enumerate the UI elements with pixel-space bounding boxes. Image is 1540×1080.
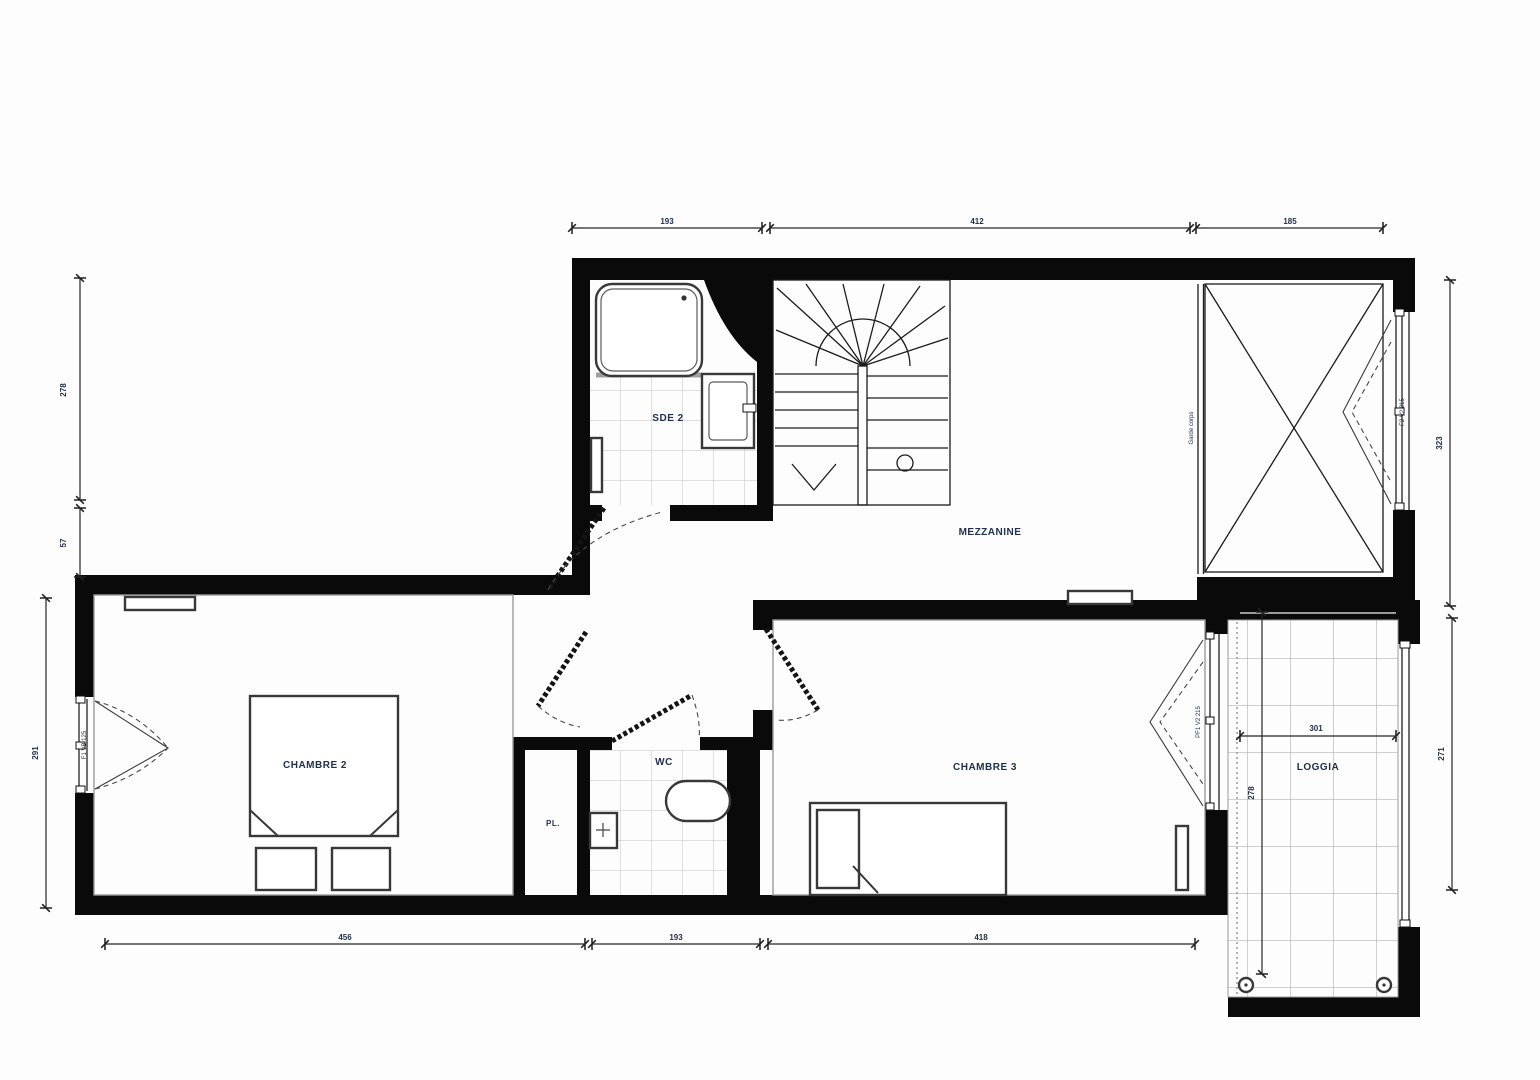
door-swing-chambre2: [538, 706, 580, 727]
room-label-sde2: SDE 2: [652, 413, 683, 424]
dim-loggia-height: 278: [1247, 786, 1256, 800]
guardrail-label: Garde corps: [1189, 411, 1195, 444]
wall-band-below-void: [1197, 577, 1415, 600]
door-ref-loggia: PF1 V2 215: [1196, 705, 1202, 737]
staircase: [773, 280, 950, 505]
chambre2-furniture: [125, 597, 398, 890]
room-label-chambre2: CHAMBRE 2: [283, 760, 347, 771]
wall-sde2-bottom-a: [572, 505, 602, 521]
wall-left-lower-a: [75, 575, 94, 697]
dim-bottom-middle: 193: [669, 933, 683, 942]
door-swing-chambre3: [777, 710, 818, 720]
chambre3-furniture: [810, 591, 1188, 895]
toilet: [666, 781, 730, 821]
window-ref-upper-right: F2 V2 215: [1400, 397, 1406, 425]
dim-left-lower: 291: [31, 746, 40, 760]
nightstand-left: [256, 848, 316, 890]
wall-pl-wc-divider: [577, 750, 590, 895]
room-label-mezzanine: MEZZANINE: [959, 527, 1022, 538]
window-upper-right: F2 V2 215: [1343, 309, 1409, 510]
wall-loggia-left-lower: [1205, 810, 1228, 915]
window-ref-chambre2: F1 VB 125: [82, 730, 88, 759]
bed-pillow: [817, 810, 859, 888]
wall-loggia-bottom: [1228, 997, 1420, 1017]
shower-drain-icon: [681, 295, 686, 300]
doors: [538, 508, 818, 741]
drain-dot: [1244, 983, 1247, 986]
nightstand-right: [332, 848, 390, 890]
dim-bottom-left: 456: [338, 933, 352, 942]
stair-treads: [775, 374, 948, 470]
room-label-wc: WC: [655, 757, 673, 768]
dim-top-middle: 412: [970, 217, 984, 226]
floor-plan-page: Garde corps F2 V2 215 F1 VB 125 PF1 V2 2…: [0, 0, 1540, 1080]
drain-dot: [1382, 983, 1385, 986]
dim-loggia-width: 301: [1309, 724, 1323, 733]
loggia-door: PF1 V2 215: [1150, 632, 1219, 810]
stair-down-arrow-icon: [792, 464, 836, 490]
room-label-pl: PL.: [546, 819, 560, 828]
loggia-tiles: [1228, 620, 1398, 997]
door-leaf-chambre3: [766, 629, 818, 710]
wall-right-upper-b: [1393, 510, 1415, 577]
washbasin-tap-icon: [743, 404, 756, 412]
dim-top-right: 185: [1283, 217, 1297, 226]
radiator-chambre2: [125, 597, 195, 610]
radiator-chambre3-top: [1068, 591, 1132, 604]
radiator-chambre3-right: [1176, 826, 1188, 890]
void-guardrail-box: Garde corps: [1189, 284, 1383, 574]
dim-top-left: 193: [660, 217, 674, 226]
room-label-loggia: LOGGIA: [1297, 762, 1339, 773]
stair-newel-post: [897, 455, 913, 471]
casement-swing-solid: [95, 701, 168, 789]
wall-sde2-bottom-b: [670, 505, 773, 521]
door-leaf-wc: [612, 695, 692, 741]
stair-handrail: [858, 366, 867, 505]
radiator-sde2: [591, 438, 602, 492]
floor-plan-drawing: Garde corps F2 V2 215 F1 VB 125 PF1 V2 2…: [0, 0, 1540, 1080]
wall-chambre2-top: [75, 575, 590, 595]
door-swing-wc: [692, 695, 699, 739]
wall-chambre3-top: [753, 600, 1228, 620]
dim-loggia-right: 271: [1437, 747, 1446, 761]
wall-wc-chambre3-divider: [727, 750, 760, 895]
wall-wc-top-a: [590, 737, 612, 750]
door-leaf-chambre2: [538, 632, 586, 706]
dim-left-upper: 278: [59, 383, 68, 397]
wall-chambre3-stub-b: [753, 710, 773, 750]
walls: [75, 258, 1420, 1017]
loggia-right-glazing: [1400, 641, 1410, 927]
window-chambre2: F1 VB 125: [76, 696, 168, 793]
stair-winders: [776, 284, 948, 366]
casement-swing-dashed: [95, 701, 168, 789]
duct-shaft: [704, 280, 757, 362]
wall-top-upper: [572, 258, 1415, 280]
wall-loggia-top: [1228, 600, 1420, 620]
room-label-chambre3: CHAMBRE 3: [953, 762, 1017, 773]
dim-left-small: 57: [59, 538, 68, 547]
casement-swing-solid: [1343, 320, 1391, 504]
wall-right-upper-a: [1393, 258, 1415, 312]
wall-sde2-stair-divider: [757, 258, 773, 505]
wall-loggia-right-corner: [1398, 620, 1420, 644]
wall-bottom: [75, 895, 1228, 915]
casement-swing-dashed: [1352, 342, 1391, 482]
dim-right-upper: 323: [1435, 436, 1444, 450]
wall-pl-top: [513, 737, 590, 750]
wall-pl-left: [513, 737, 525, 915]
dim-bottom-right: 418: [974, 933, 988, 942]
